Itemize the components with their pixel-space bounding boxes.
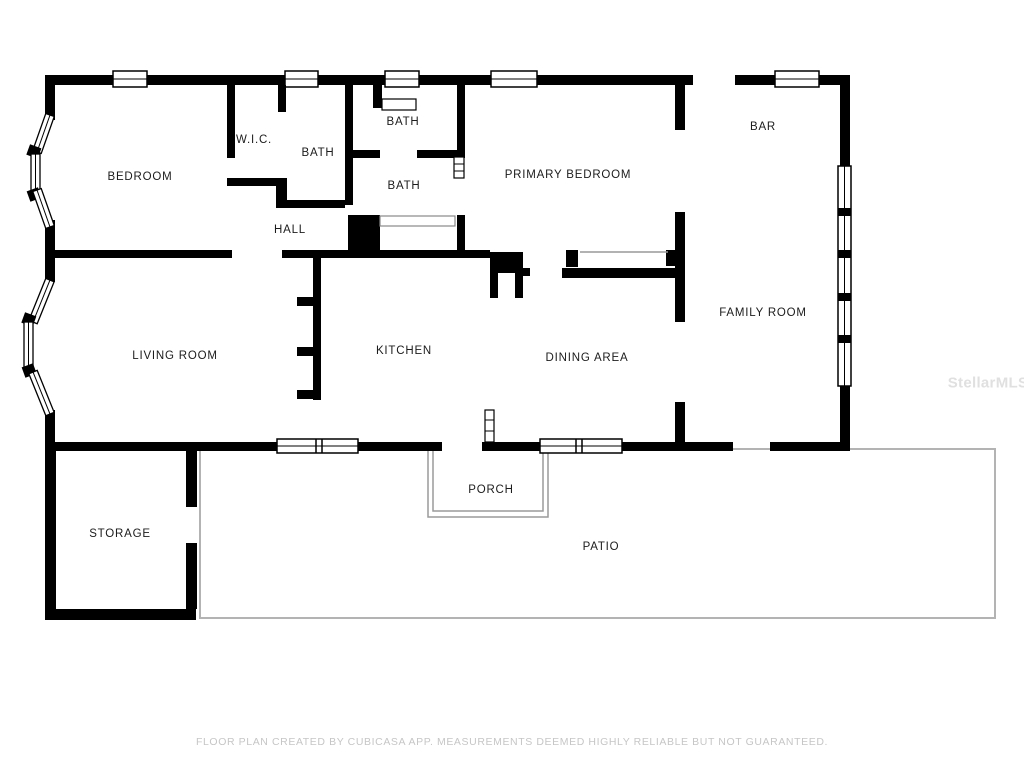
porch-outline (428, 444, 548, 517)
living-room-bay-window (21, 278, 54, 415)
room-label-dining-area: DINING AREA (546, 352, 629, 364)
stellar-mls-watermark: StellarMLS (948, 375, 1024, 392)
floor-plan-page: BEDROOMW.I.C.BATHBATHBATHHALLPRIMARY BED… (0, 0, 1024, 768)
patio-outline (200, 449, 995, 618)
room-label-porch: PORCH (468, 484, 514, 496)
room-label-bar: BAR (750, 121, 776, 133)
right-window-strip (838, 166, 851, 386)
disclaimer-text: FLOOR PLAN CREATED BY CUBICASA APP. MEAS… (196, 736, 828, 748)
room-label-bedroom: BEDROOM (107, 171, 172, 183)
room-label-living-room: LIVING ROOM (132, 350, 217, 362)
room-label-bath: BATH (386, 116, 419, 128)
room-label-w-i-c: W.I.C. (236, 134, 272, 146)
room-label-storage: STORAGE (89, 528, 151, 540)
room-label-hall: HALL (274, 224, 306, 236)
bedroom-bay-window (26, 114, 54, 229)
room-label-family-room: FAMILY ROOM (719, 307, 807, 319)
floor-plan-drawing (0, 0, 1024, 768)
room-label-primary-bedroom: PRIMARY BEDROOM (505, 169, 632, 181)
room-label-bath: BATH (301, 147, 334, 159)
room-label-patio: PATIO (583, 541, 620, 553)
interior-walls (45, 85, 685, 451)
room-label-bath: BATH (387, 180, 420, 192)
room-label-kitchen: KITCHEN (376, 345, 432, 357)
